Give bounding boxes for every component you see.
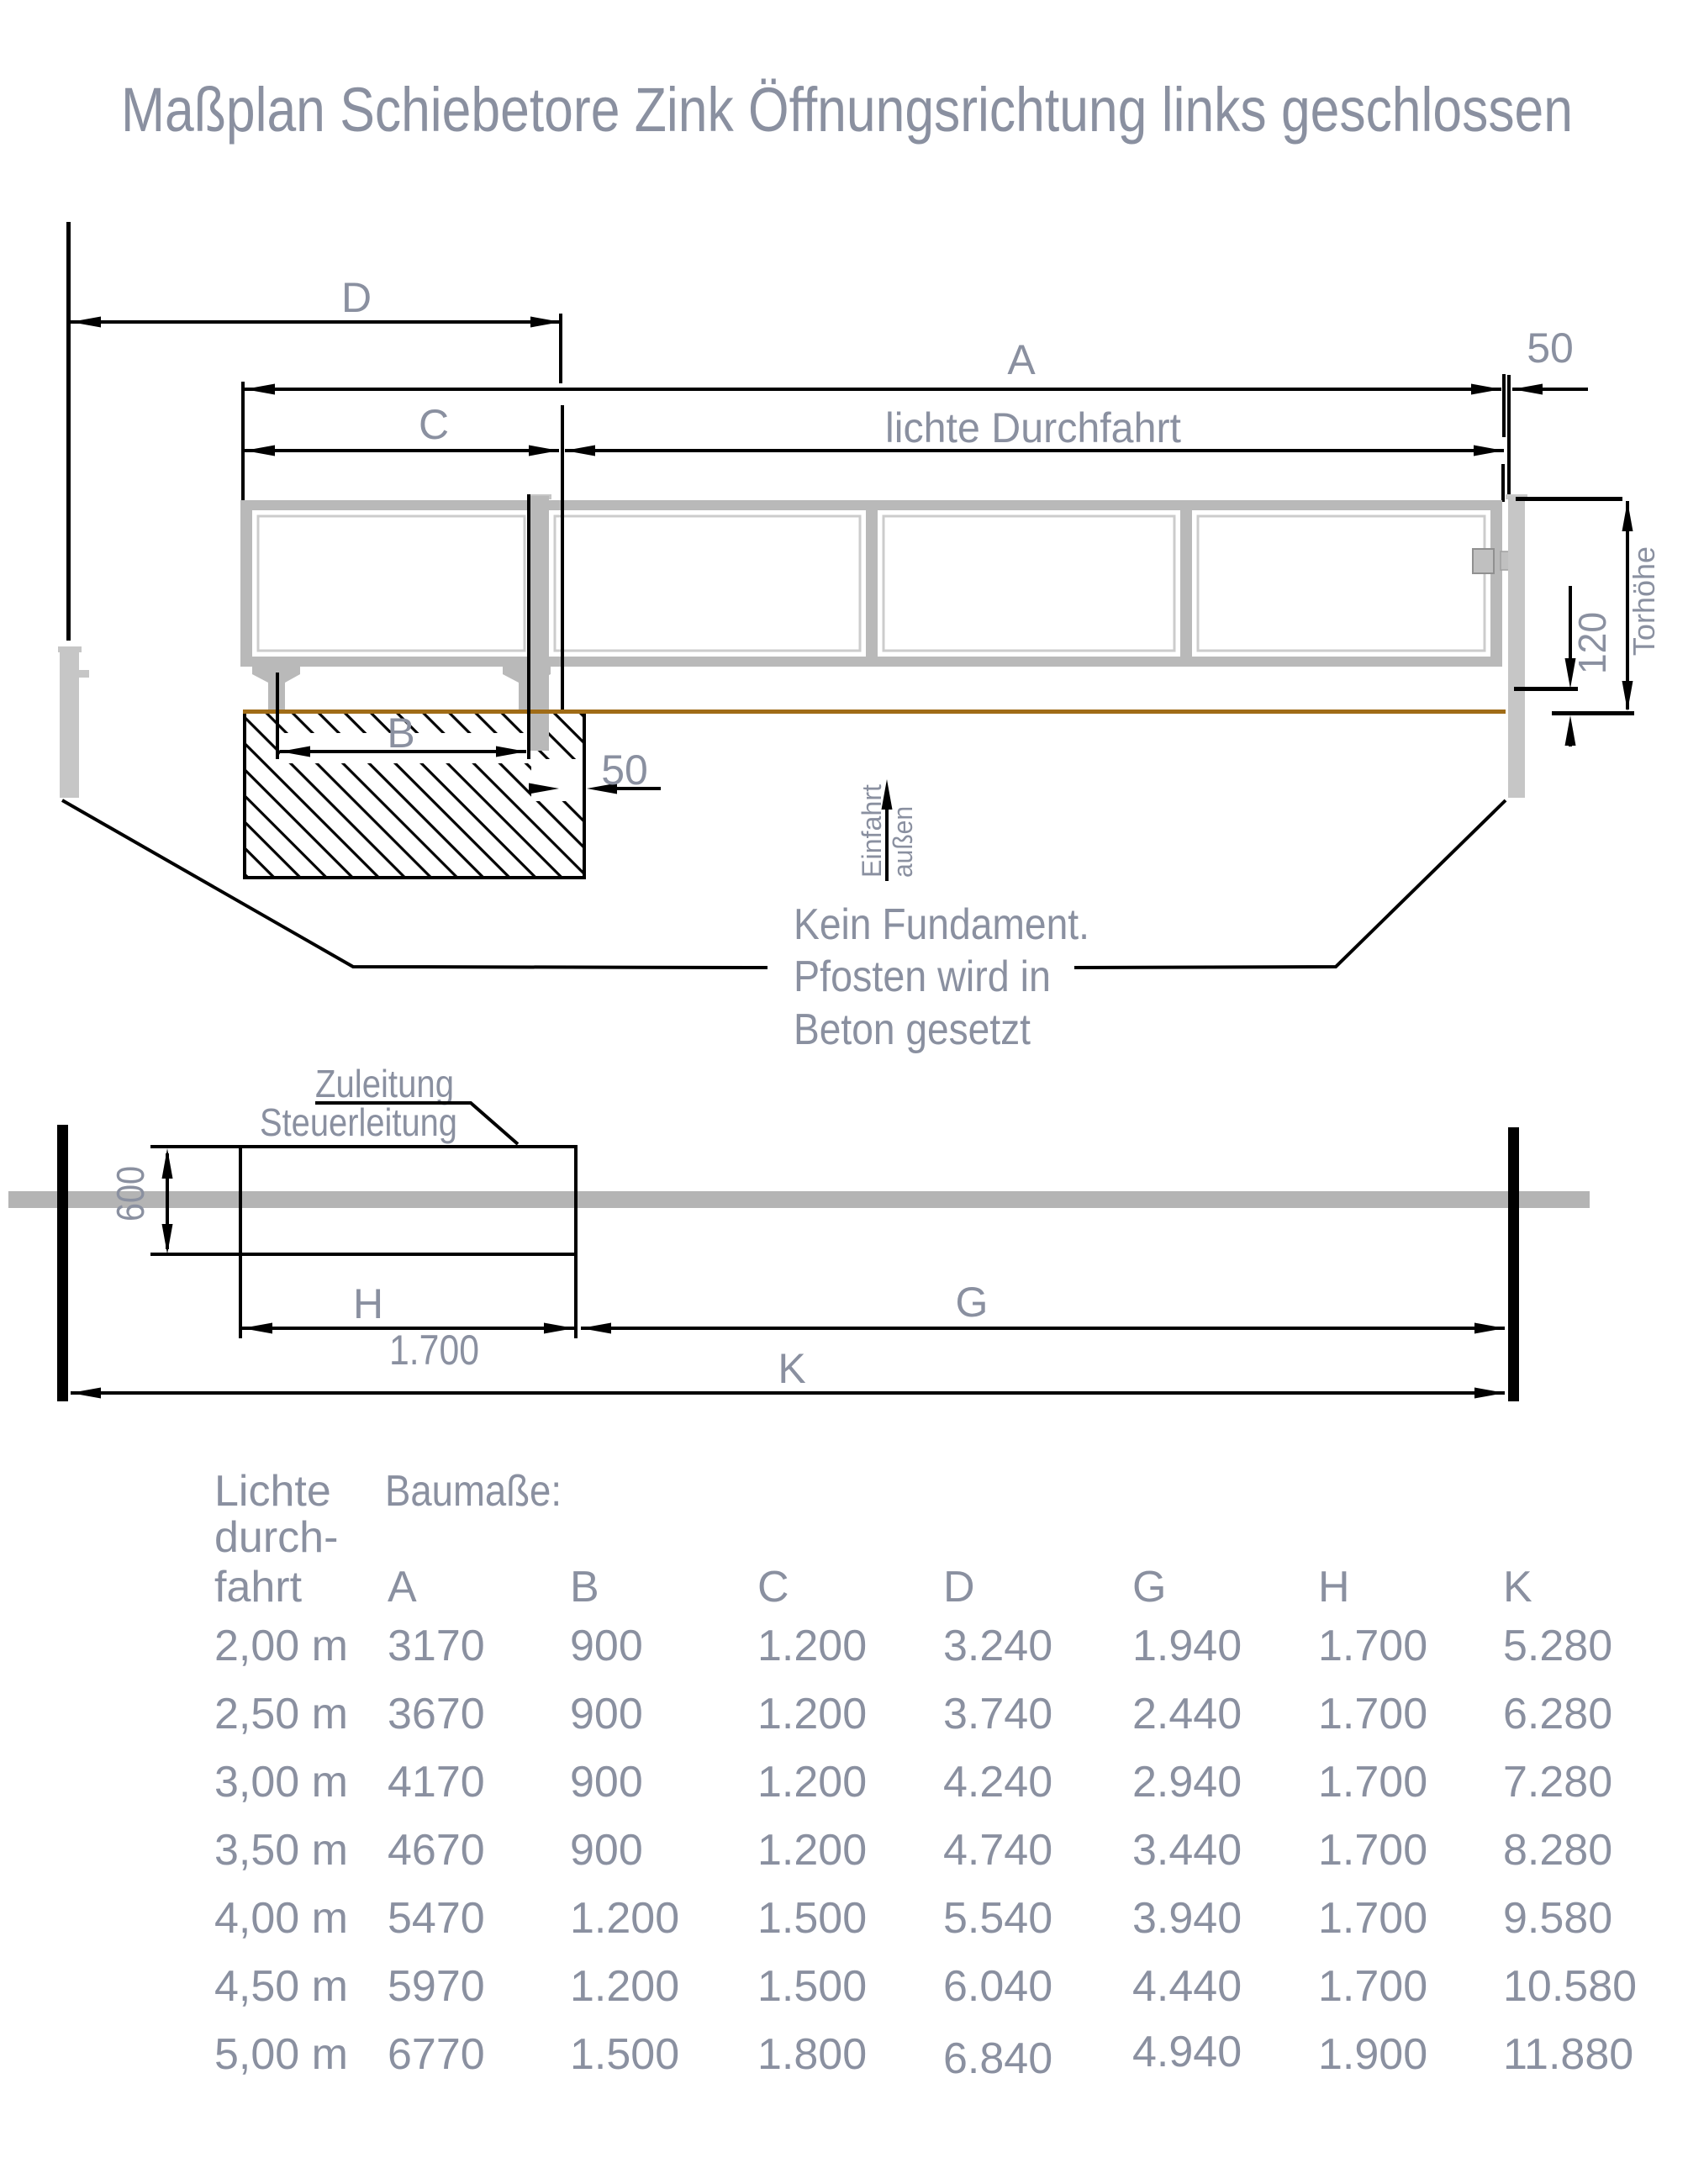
svg-text:5.540: 5.540 [943, 1894, 1052, 1943]
svg-text:A: A [388, 1563, 417, 1612]
svg-text:1.700: 1.700 [1318, 1758, 1427, 1807]
svg-text:1.500: 1.500 [570, 2030, 679, 2079]
svg-text:4,50 m: 4,50 m [214, 1962, 348, 2011]
svg-text:4.240: 4.240 [943, 1758, 1052, 1807]
svg-text:Kein Fundament.: Kein Fundament. [794, 900, 1089, 949]
svg-text:2.940: 2.940 [1132, 1758, 1242, 1807]
svg-text:1.700: 1.700 [1318, 1962, 1427, 2011]
svg-text:Steuerleitung: Steuerleitung [260, 1100, 457, 1144]
svg-text:Maßplan Schiebetore Zink Öffnu: Maßplan Schiebetore Zink Öffnungsrichtun… [121, 75, 1573, 145]
svg-text:5470: 5470 [388, 1894, 485, 1943]
svg-text:3,50 m: 3,50 m [214, 1826, 348, 1875]
svg-text:3670: 3670 [388, 1690, 485, 1738]
svg-text:H: H [1318, 1563, 1350, 1612]
svg-text:4.740: 4.740 [943, 1826, 1052, 1875]
svg-text:D: D [943, 1563, 975, 1612]
svg-text:1.700: 1.700 [1318, 1622, 1427, 1670]
svg-text:8.280: 8.280 [1503, 1826, 1612, 1875]
svg-text:1.500: 1.500 [757, 1894, 867, 1943]
svg-text:1.700: 1.700 [1318, 1826, 1427, 1875]
svg-text:G: G [956, 1279, 989, 1326]
svg-text:1.800: 1.800 [757, 2030, 867, 2079]
svg-text:Baumaße:: Baumaße: [385, 1467, 562, 1516]
svg-text:3170: 3170 [388, 1622, 485, 1670]
svg-text:Einfahrt: Einfahrt [857, 784, 887, 878]
svg-text:lichte Durchfahrt: lichte Durchfahrt [885, 404, 1181, 451]
svg-text:11.880: 11.880 [1503, 2030, 1633, 2079]
svg-text:6.280: 6.280 [1503, 1690, 1612, 1738]
svg-text:3.740: 3.740 [943, 1690, 1052, 1738]
svg-text:1.940: 1.940 [1132, 1622, 1242, 1670]
svg-text:1.700: 1.700 [389, 1327, 479, 1374]
svg-text:Beton gesetzt: Beton gesetzt [794, 1005, 1031, 1054]
svg-text:D: D [341, 274, 372, 321]
svg-text:9.580: 9.580 [1503, 1894, 1612, 1943]
svg-text:900: 900 [570, 1826, 643, 1875]
svg-text:Zuleitung: Zuleitung [315, 1062, 454, 1105]
svg-text:C: C [419, 401, 449, 448]
svg-text:7.280: 7.280 [1503, 1758, 1612, 1807]
svg-text:1.200: 1.200 [570, 1962, 679, 2011]
svg-text:6770: 6770 [388, 2030, 485, 2079]
svg-text:900: 900 [570, 1622, 643, 1670]
svg-text:4.940: 4.940 [1132, 2028, 1242, 2076]
svg-text:3.940: 3.940 [1132, 1894, 1242, 1943]
svg-text:K: K [778, 1345, 805, 1392]
svg-text:G: G [1132, 1563, 1166, 1612]
svg-text:4170: 4170 [388, 1758, 485, 1807]
svg-text:K: K [1503, 1563, 1532, 1612]
svg-text:C: C [757, 1563, 789, 1612]
svg-text:durch-: durch- [214, 1513, 338, 1562]
svg-text:B: B [570, 1563, 599, 1612]
svg-text:1.700: 1.700 [1318, 1690, 1427, 1738]
svg-text:3,00 m: 3,00 m [214, 1758, 348, 1807]
svg-text:2,00 m: 2,00 m [214, 1622, 348, 1670]
svg-text:6.840: 6.840 [943, 2034, 1052, 2083]
svg-text:außen: außen [888, 806, 918, 878]
svg-text:2,50 m: 2,50 m [214, 1690, 348, 1738]
svg-text:6.040: 6.040 [943, 1962, 1052, 2011]
svg-text:1.200: 1.200 [757, 1622, 867, 1670]
svg-text:1.200: 1.200 [570, 1894, 679, 1943]
svg-text:H: H [353, 1280, 383, 1327]
svg-text:1.200: 1.200 [757, 1826, 867, 1875]
svg-text:4670: 4670 [388, 1826, 485, 1875]
svg-text:Lichte: Lichte [214, 1467, 331, 1516]
svg-text:1.700: 1.700 [1318, 1894, 1427, 1943]
svg-text:fahrt: fahrt [214, 1563, 303, 1612]
svg-text:B: B [387, 710, 414, 757]
svg-text:1.200: 1.200 [757, 1758, 867, 1807]
svg-text:Torhöhe: Torhöhe [1627, 546, 1661, 656]
svg-text:1.200: 1.200 [757, 1690, 867, 1738]
svg-text:50: 50 [1527, 324, 1574, 372]
svg-text:3.240: 3.240 [943, 1622, 1052, 1670]
svg-text:1.500: 1.500 [757, 1962, 867, 2011]
svg-text:2.440: 2.440 [1132, 1690, 1242, 1738]
svg-text:4.440: 4.440 [1132, 1962, 1242, 2011]
svg-text:5,00 m: 5,00 m [214, 2030, 348, 2079]
svg-text:A: A [1007, 336, 1036, 383]
svg-text:4,00 m: 4,00 m [214, 1894, 348, 1943]
svg-text:600: 600 [108, 1166, 152, 1221]
svg-text:120: 120 [1570, 612, 1614, 674]
svg-text:3.440: 3.440 [1132, 1826, 1242, 1875]
svg-text:5.280: 5.280 [1503, 1622, 1612, 1670]
svg-text:Pfosten wird in: Pfosten wird in [794, 952, 1051, 1001]
svg-text:5970: 5970 [388, 1962, 485, 2011]
svg-text:50: 50 [601, 746, 648, 794]
svg-text:900: 900 [570, 1758, 643, 1807]
svg-text:900: 900 [570, 1690, 643, 1738]
svg-text:1.900: 1.900 [1318, 2030, 1427, 2079]
svg-text:10.580: 10.580 [1503, 1962, 1637, 2011]
